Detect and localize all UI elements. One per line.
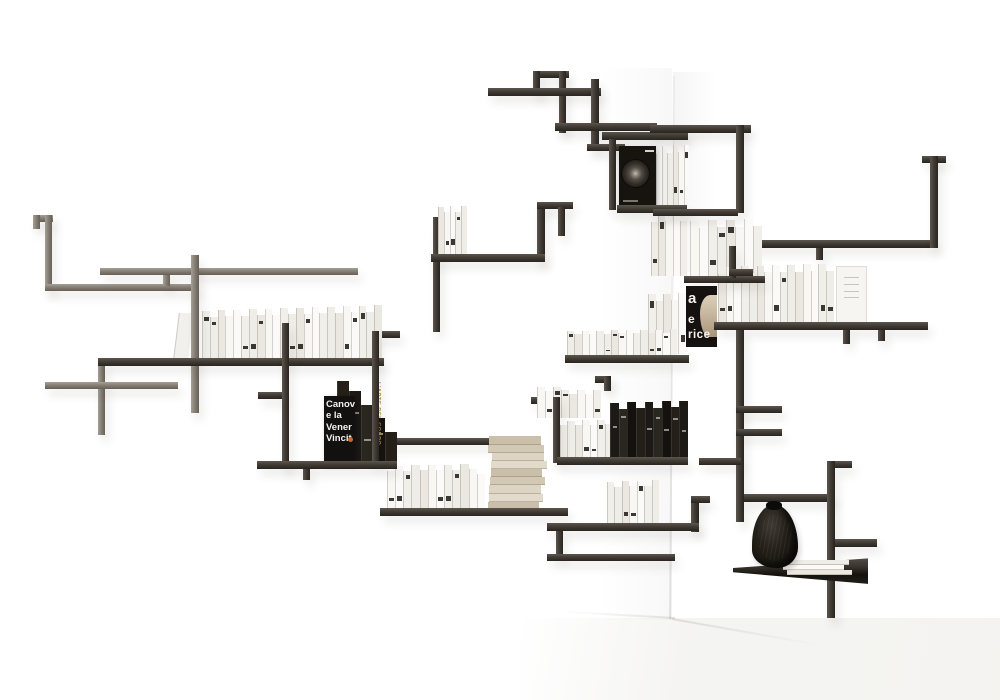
spine-label [720,308,724,311]
book [590,425,597,460]
spine-label [569,334,573,337]
book [218,310,226,361]
spine-label [361,313,365,319]
book [582,420,589,460]
book [567,331,574,357]
metal-rod [835,461,852,468]
cover-text-mark [645,150,654,152]
book [679,401,688,459]
spine-label [685,152,688,158]
book [607,482,614,526]
book [489,494,544,502]
book [645,402,654,459]
book [460,464,468,510]
spine-label [446,241,449,244]
book [452,470,460,510]
book [780,272,788,324]
cover-letter: rice [688,330,710,342]
spine-label [298,344,302,349]
orange-dot-logo [348,437,353,442]
book [444,465,452,510]
spine-label [664,336,668,338]
spine-label [613,334,617,337]
spine-label [455,474,460,478]
metal-rod [604,376,611,391]
book [662,401,671,459]
book [708,220,717,278]
metal-rod [45,215,52,291]
metal-rod [609,139,616,210]
spine-label [657,348,661,351]
book-group-white [651,212,687,276]
book [670,329,677,357]
metal-rod [45,284,197,291]
faint-cover-text [844,277,859,278]
bookshelf-product-photo: a e rice Canov e la Vener Vincit L'ARTE … [0,0,1000,700]
metal-rod [743,240,935,248]
book [488,445,544,453]
book [655,330,662,357]
cover-text-mark [623,200,638,202]
book [288,314,296,361]
black-sculptural-vase [752,505,798,568]
book [593,390,601,418]
metal-rod [555,123,657,131]
spine-text-mark [664,429,669,431]
book [343,306,351,361]
spine-label [650,349,654,351]
book [351,312,359,361]
book-group-white [560,418,612,460]
book [596,331,603,357]
spine-label [446,496,451,501]
metal-rod [684,276,765,283]
spine-label [457,217,460,220]
spine-text-mark [621,416,626,418]
spine-label [212,322,216,325]
metal-rod [163,275,170,286]
book [461,206,467,255]
spine-label [555,391,559,395]
book [622,481,629,526]
spine-label [728,227,733,233]
book [803,264,811,324]
book [640,330,647,357]
spine-label [710,260,715,266]
book [569,394,577,418]
metal-rod [699,458,741,465]
book [202,311,210,362]
book-group-white [567,329,677,357]
metal-rod [736,406,782,413]
spine-label [204,317,208,321]
spine-label [259,321,263,324]
cover-letter: a [688,291,696,306]
metal-rod [282,323,289,469]
spine-text-mark [656,417,661,419]
spine-label [620,336,624,338]
book [678,293,686,354]
book [604,334,611,357]
book [627,402,636,459]
spine-label [345,344,349,350]
cover-title-line: Canov [324,399,355,410]
book [327,307,335,361]
book [651,222,658,276]
spine-label [728,306,732,312]
metal-rod [431,254,545,262]
metal-rod [558,207,565,236]
book [560,425,567,460]
spine-label [451,239,454,244]
book [699,228,708,278]
metal-rod [556,530,563,557]
metal-rod [714,322,928,330]
spine-label [599,425,603,429]
metal-rod [843,330,850,344]
book [818,264,826,324]
metal-rod [380,438,503,445]
book [652,480,659,526]
book [795,272,803,325]
book [618,333,625,357]
book [619,409,628,459]
book [673,214,680,276]
metal-rod [744,494,834,502]
book [690,221,699,278]
book [489,485,540,493]
book [490,477,545,485]
book [395,466,403,510]
book-group-white [656,139,689,207]
spine-label [606,350,610,352]
metal-rod [827,461,835,618]
black-book-cover-statue-face: a e rice [686,286,717,347]
book [469,469,477,510]
book [811,271,819,324]
book [633,333,640,357]
spine-label [547,409,551,411]
book [826,271,834,325]
book [644,486,651,526]
spine-label [680,190,683,194]
book [477,474,485,510]
spine-label [782,278,786,282]
spine-label [353,318,357,322]
metal-rod [547,523,699,531]
book [680,221,687,276]
book [772,265,780,324]
metal-rod [372,331,379,464]
spine-label [595,409,599,412]
book [296,308,304,361]
metal-rod [729,269,753,276]
book [491,461,546,469]
spine-label [406,475,411,478]
spine-label [653,259,657,263]
metal-rod [537,202,573,209]
metal-rod [547,554,675,561]
book [653,408,662,459]
black-album-book-cover [619,146,656,206]
book [561,390,569,418]
book [319,313,327,361]
spine-label [306,319,310,322]
book [757,266,765,324]
spine-label [774,305,778,311]
spine-label [290,346,294,349]
book [272,315,280,361]
book [537,387,545,418]
book [665,221,672,276]
book [491,469,543,477]
book [265,309,273,361]
book [312,307,320,361]
record-circle-graphic [622,160,649,187]
spine-label [438,497,443,500]
metal-rod [736,125,744,213]
metal-rod [380,508,568,516]
metal-rod [257,461,397,469]
book [428,465,436,510]
book [614,487,621,526]
metal-rod [191,255,199,413]
book [662,333,669,357]
metal-rod [878,330,885,341]
book [249,309,257,361]
book [684,145,690,207]
faint-cover-text [844,297,859,298]
book [671,407,680,459]
book-group-lean [176,303,191,359]
spine-text-mark [613,426,618,428]
spine-label [389,498,394,501]
book [636,408,645,459]
book [836,266,867,324]
book [629,486,636,526]
spine-text-mark [647,428,652,430]
book [257,315,265,361]
book-group-plain [836,257,867,324]
spine-label [681,335,685,342]
book-group-white [607,477,659,526]
book [335,313,343,361]
book [492,453,544,461]
spine-text-mark [682,430,687,432]
spine-label [563,394,567,396]
metal-rod [565,355,689,363]
metal-rod [45,382,178,389]
book-group-flat [783,560,849,575]
book [545,391,553,418]
book [210,317,218,361]
book [225,316,233,361]
book [577,390,585,418]
spine-text-mark [673,418,678,420]
spine-label [674,187,677,193]
metal-rod [691,496,710,503]
book [637,481,644,526]
spine-label [397,496,402,501]
book [589,334,596,357]
book [489,436,541,444]
metal-rod [488,88,601,96]
spine-label [821,305,825,312]
spine-label [584,447,588,451]
metal-rod [816,248,823,260]
metal-rod [835,539,877,547]
metal-rod [303,468,310,480]
faint-cover-text [844,291,859,292]
spine-label [639,486,643,490]
book [597,420,604,460]
book [420,470,428,510]
metal-rod [553,397,560,463]
spine-label [251,344,255,349]
cover-title-line: e la [324,410,355,421]
book-group-white [387,464,485,510]
floor-area [520,618,1000,700]
book [610,403,619,460]
metal-rod [736,330,744,522]
cover-letter: e [688,313,695,325]
metal-rod [537,202,545,262]
spine-label [624,512,628,516]
spine-label [592,449,596,452]
book [626,330,633,357]
book [585,394,593,418]
metal-rod [98,362,105,435]
book [582,331,589,357]
book [387,471,395,510]
book [359,306,367,361]
cover-title-line: Vener [324,422,355,433]
metal-rod [591,79,599,148]
book [611,330,618,357]
book-group-white [537,387,601,418]
book [648,333,655,357]
book [658,215,665,276]
book [304,314,312,361]
spine-label [631,513,635,516]
book [436,470,444,510]
metal-rod [98,358,384,366]
spine-label [650,301,654,308]
book-group-white [202,304,382,361]
spine-label [719,233,724,236]
spine-label [828,307,832,311]
metal-rod [557,457,688,465]
book-group-black [610,396,688,459]
metal-rod [100,268,358,275]
book-group-white [438,204,467,255]
metal-rod [736,429,782,436]
book [403,471,411,510]
book [787,570,852,575]
metal-rod [930,156,938,248]
metal-rod [653,209,738,216]
book [241,316,249,361]
book-group-beige [488,436,546,510]
book [787,265,795,324]
book [574,334,581,357]
book [575,425,582,460]
book [385,432,397,463]
book [567,421,574,460]
metal-rod [258,392,284,399]
metal-rod [33,215,40,229]
book [764,272,772,324]
book [411,465,419,510]
black-book-cover-canova: Canov e la Vener Vincit [324,396,355,464]
spine-label [243,346,247,349]
book [233,310,241,361]
faint-cover-text [844,284,859,285]
spine-label [660,222,664,229]
